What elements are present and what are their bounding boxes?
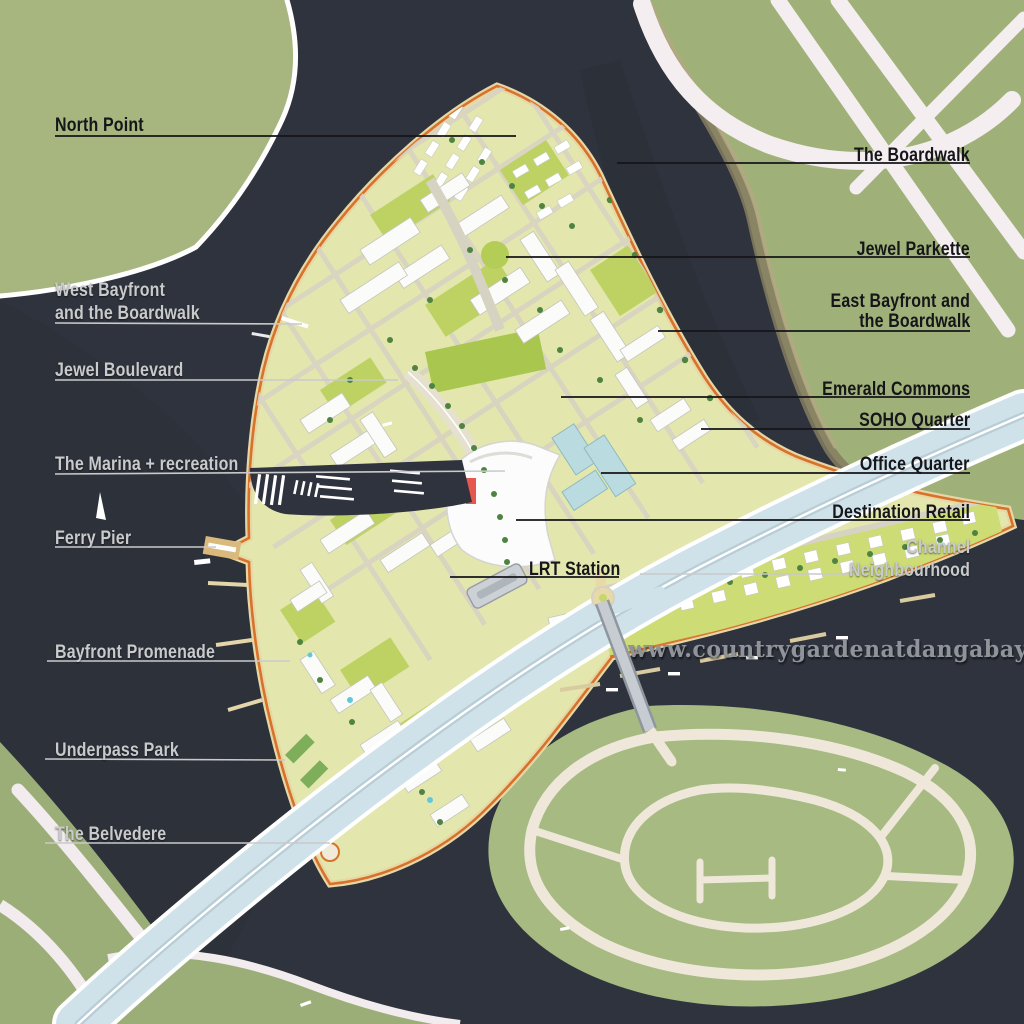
label-office-quarter: Office Quarter <box>860 455 970 475</box>
label-underpass-park: Underpass Park <box>55 741 179 761</box>
destination-retail-building <box>447 441 560 567</box>
label-north-point: North Point <box>55 116 144 136</box>
label-destination-retail: Destination Retail <box>832 503 970 523</box>
marina <box>250 460 472 516</box>
label-east-bayfront-line1: East Bayfront and <box>831 292 970 312</box>
label-jewel-parkette: Jewel Parkette <box>857 240 970 260</box>
label-marina: The Marina + recreation <box>55 455 238 475</box>
label-west-bayfront-line2: and the Boardwalk <box>55 304 200 324</box>
label-channel-line1: Channel <box>906 538 970 558</box>
label-channel-line2: Neighbourhood <box>849 561 970 581</box>
watermark-url: www.countrygardenatdangabay.com.my <box>628 636 1024 663</box>
label-the-boardwalk: The Boardwalk <box>854 146 970 166</box>
label-soho-quarter: SOHO Quarter <box>859 411 970 431</box>
label-ferry-pier: Ferry Pier <box>55 529 131 549</box>
label-east-bayfront-line2: the Boardwalk <box>859 312 970 332</box>
label-bayfront-promenade: Bayfront Promenade <box>55 643 215 663</box>
label-jewel-boulevard: Jewel Boulevard <box>55 361 183 381</box>
label-west-bayfront-line1: West Bayfront <box>55 281 165 301</box>
masterplan-map: North Point The Boardwalk Jewel Parkette… <box>0 0 1024 1024</box>
label-emerald-commons: Emerald Commons <box>822 380 970 400</box>
label-the-belvedere: The Belvedere <box>55 825 166 845</box>
label-lrt-station: LRT Station <box>529 560 620 580</box>
